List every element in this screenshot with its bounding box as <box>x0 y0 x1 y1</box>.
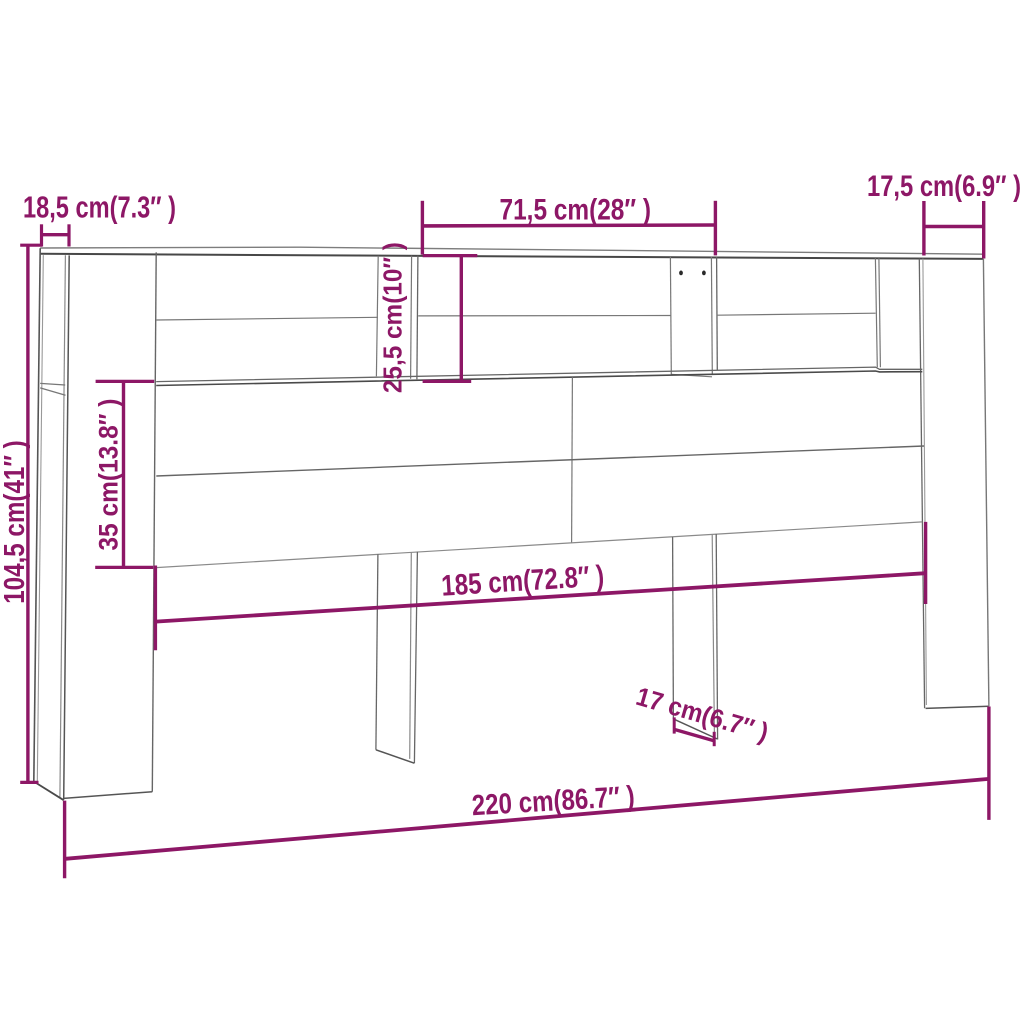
svg-text:17,5 cm(6.9″ ): 17,5 cm(6.9″ ) <box>867 170 1021 203</box>
svg-text:71,5 cm(28″ ): 71,5 cm(28″ ) <box>500 193 652 226</box>
svg-text:18,5 cm(7.3″ ): 18,5 cm(7.3″ ) <box>23 190 176 225</box>
svg-text:104,5 cm(41″ ): 104,5 cm(41″ ) <box>0 440 31 604</box>
svg-text:35 cm(13.8″ ): 35 cm(13.8″ ) <box>94 399 124 551</box>
svg-text:25,5 cm(10″ ): 25,5 cm(10″ ) <box>378 242 408 393</box>
